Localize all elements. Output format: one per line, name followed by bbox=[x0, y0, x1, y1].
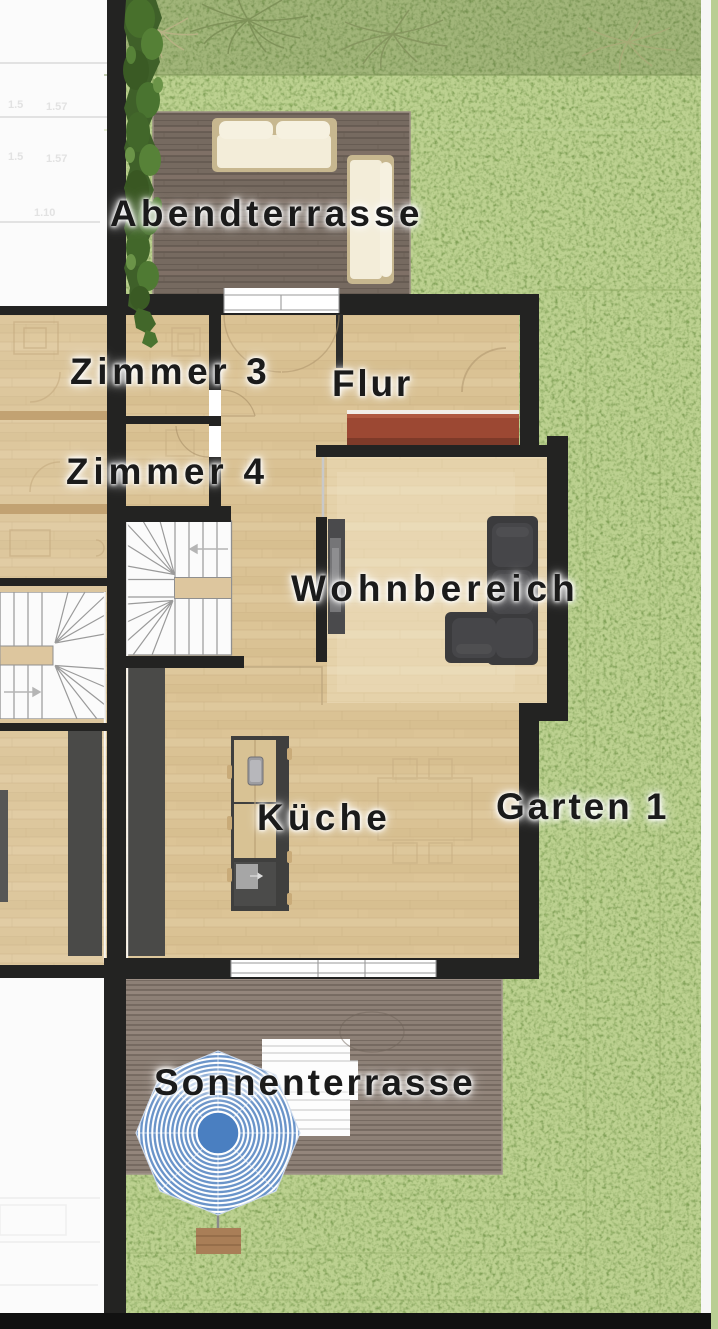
svg-text:1.57: 1.57 bbox=[46, 153, 67, 165]
svg-text:1.10: 1.10 bbox=[34, 207, 55, 219]
svg-text:1.5: 1.5 bbox=[8, 99, 23, 111]
svg-text:1.5: 1.5 bbox=[8, 151, 23, 163]
svg-text:1.57: 1.57 bbox=[46, 101, 67, 113]
